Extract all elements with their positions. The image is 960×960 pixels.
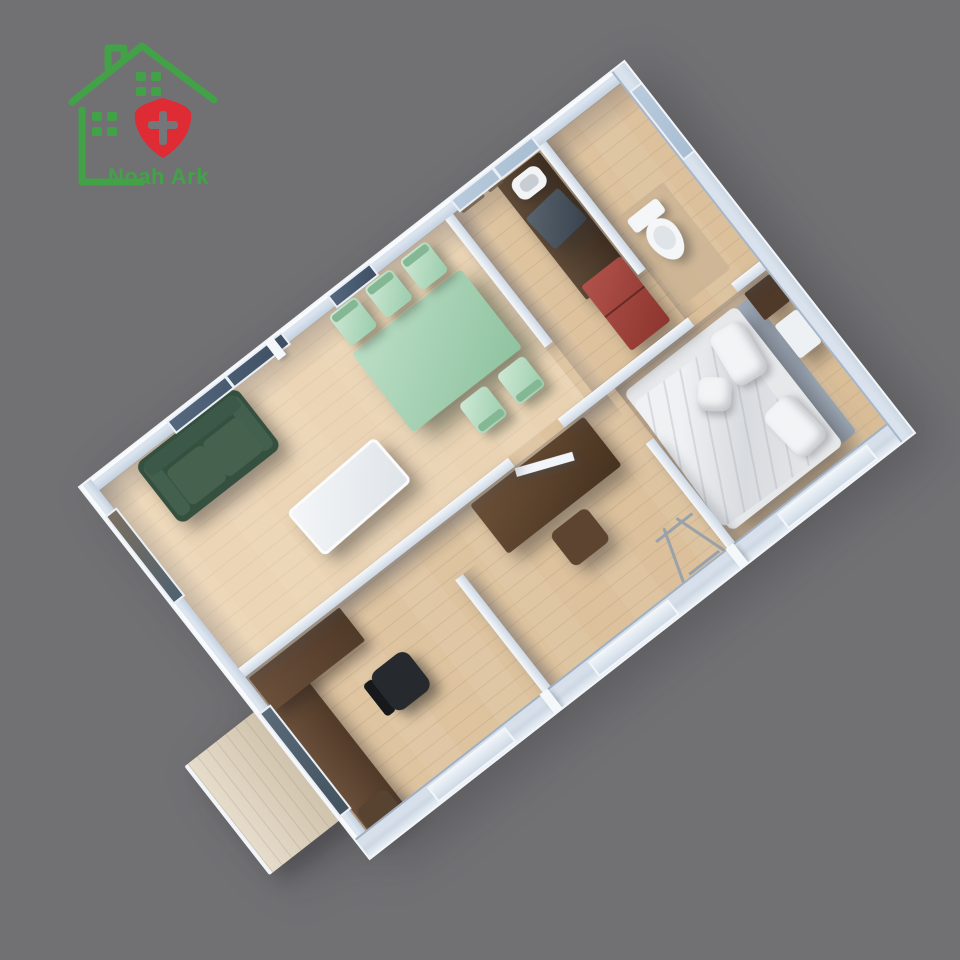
scene-background: Noah Ark bbox=[0, 0, 960, 960]
brand-name: Noah Ark bbox=[108, 164, 209, 190]
window-mullion bbox=[492, 168, 502, 179]
noah-ark-logo: Noah Ark bbox=[58, 36, 268, 206]
window-mullion bbox=[225, 376, 235, 387]
throw-pillow bbox=[697, 377, 732, 412]
